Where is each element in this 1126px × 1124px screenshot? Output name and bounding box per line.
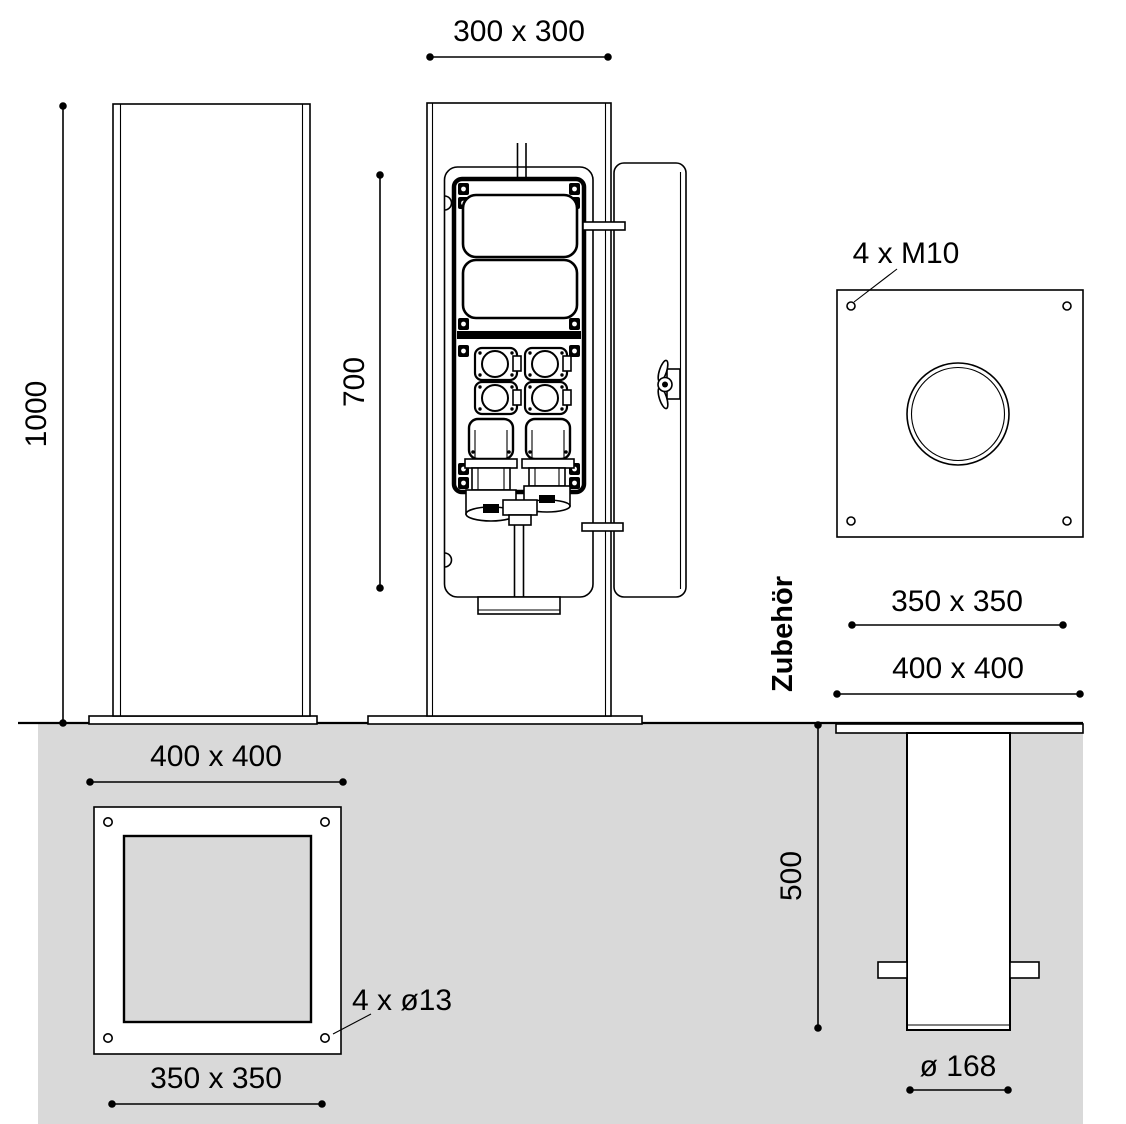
blank-window-bottom — [463, 260, 577, 318]
socket-panel — [454, 179, 584, 525]
anchor-tab-left — [878, 962, 907, 978]
hinge-pin-bottom — [582, 523, 623, 531]
hole-spacing-label: 350 x 350 — [150, 1062, 282, 1095]
dimension-total-height: 1000 — [20, 102, 67, 727]
accessories-label: Zubehör — [767, 576, 799, 692]
base-holes-label: 4 x ø13 — [352, 984, 452, 1017]
tube-diameter-label: ø 168 — [920, 1050, 997, 1083]
base-plate-label: 400 x 400 — [150, 740, 282, 773]
base-plate-opening — [124, 836, 311, 1022]
side-view — [89, 104, 317, 724]
anchor-plate-label: 400 x 400 — [892, 652, 1024, 685]
flange-bolts-label: 4 x M10 — [853, 237, 960, 270]
base-hole — [321, 818, 329, 826]
total-height-label: 1000 — [20, 381, 53, 448]
base-hole — [104, 818, 112, 826]
flange-hole — [847, 302, 855, 310]
side-base-plate — [89, 716, 317, 724]
anchor-tab-right — [1010, 962, 1039, 978]
dimension-front-width: 300 x 300 — [426, 15, 612, 61]
dimension-panel-height: 700 — [338, 171, 384, 592]
anchor-plate — [836, 724, 1083, 733]
front-width-label: 300 x 300 — [453, 15, 585, 48]
foundation-tube — [907, 733, 1010, 1030]
panel-divider — [457, 331, 581, 339]
front-view — [368, 103, 686, 724]
pillar-dimension-drawing: 1000 300 x 300 700 — [0, 0, 1126, 1124]
flange-hole — [847, 517, 855, 525]
flange-hole — [1063, 517, 1071, 525]
front-base-plate — [368, 716, 642, 724]
blank-window-top — [463, 195, 577, 257]
panel-height-label: 700 — [338, 357, 371, 407]
technical-drawing-page: 1000 300 x 300 700 — [0, 0, 1126, 1124]
hinge-pin-top — [583, 222, 625, 230]
flange-hole — [1063, 302, 1071, 310]
flange-plate-view: 4 x M10 — [837, 237, 1083, 537]
dimension-flange-size: 350 x 350 — [848, 585, 1067, 629]
junction-box — [478, 597, 560, 614]
embed-depth-label: 500 — [775, 851, 808, 901]
dimension-anchor-plate: 400 x 400 — [833, 652, 1084, 698]
side-column — [113, 104, 310, 716]
base-hole — [104, 1034, 112, 1042]
base-hole — [321, 1034, 329, 1042]
flange-plate — [837, 290, 1083, 537]
flange-size-label: 350 x 350 — [891, 585, 1023, 618]
gland-tee — [503, 500, 537, 515]
